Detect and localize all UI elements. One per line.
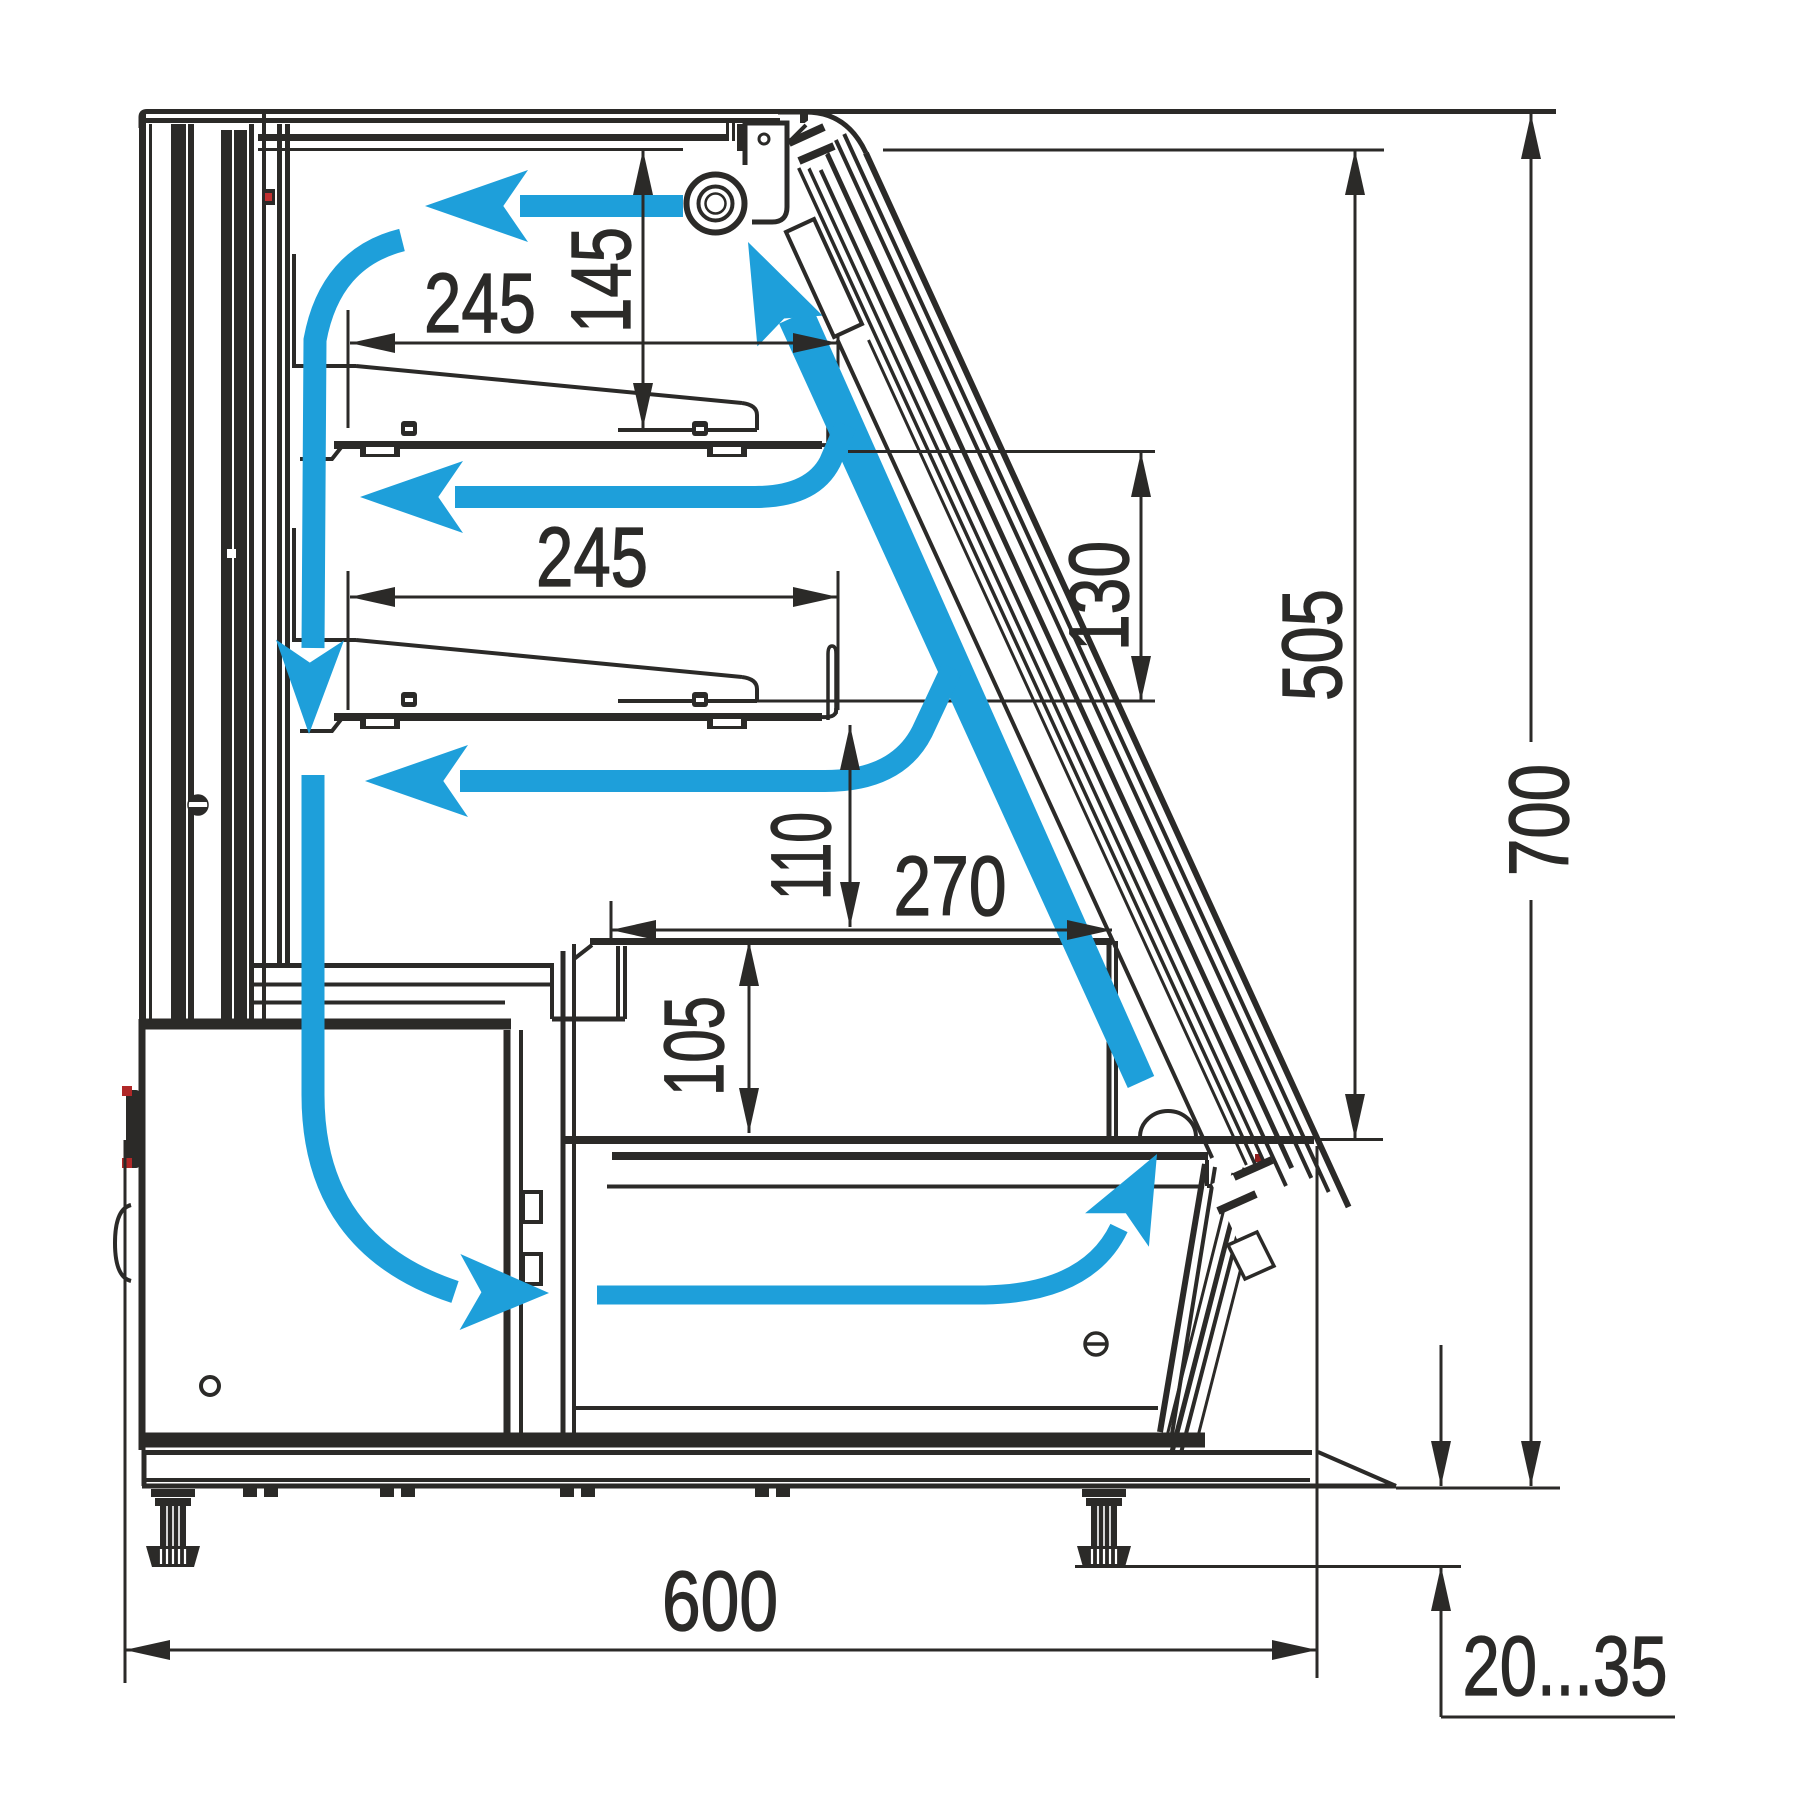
svg-text:245: 245 <box>424 256 536 350</box>
svg-text:20...35: 20...35 <box>1463 1619 1668 1713</box>
svg-text:600: 600 <box>662 1554 778 1648</box>
svg-text:505: 505 <box>1265 589 1359 701</box>
svg-text:700: 700 <box>1492 764 1586 876</box>
svg-text:130: 130 <box>1052 541 1146 651</box>
svg-text:245: 245 <box>536 510 648 604</box>
svg-text:145: 145 <box>554 227 648 333</box>
svg-text:270: 270 <box>894 839 1007 933</box>
svg-text:110: 110 <box>754 812 848 900</box>
svg-text:105: 105 <box>647 996 741 1096</box>
